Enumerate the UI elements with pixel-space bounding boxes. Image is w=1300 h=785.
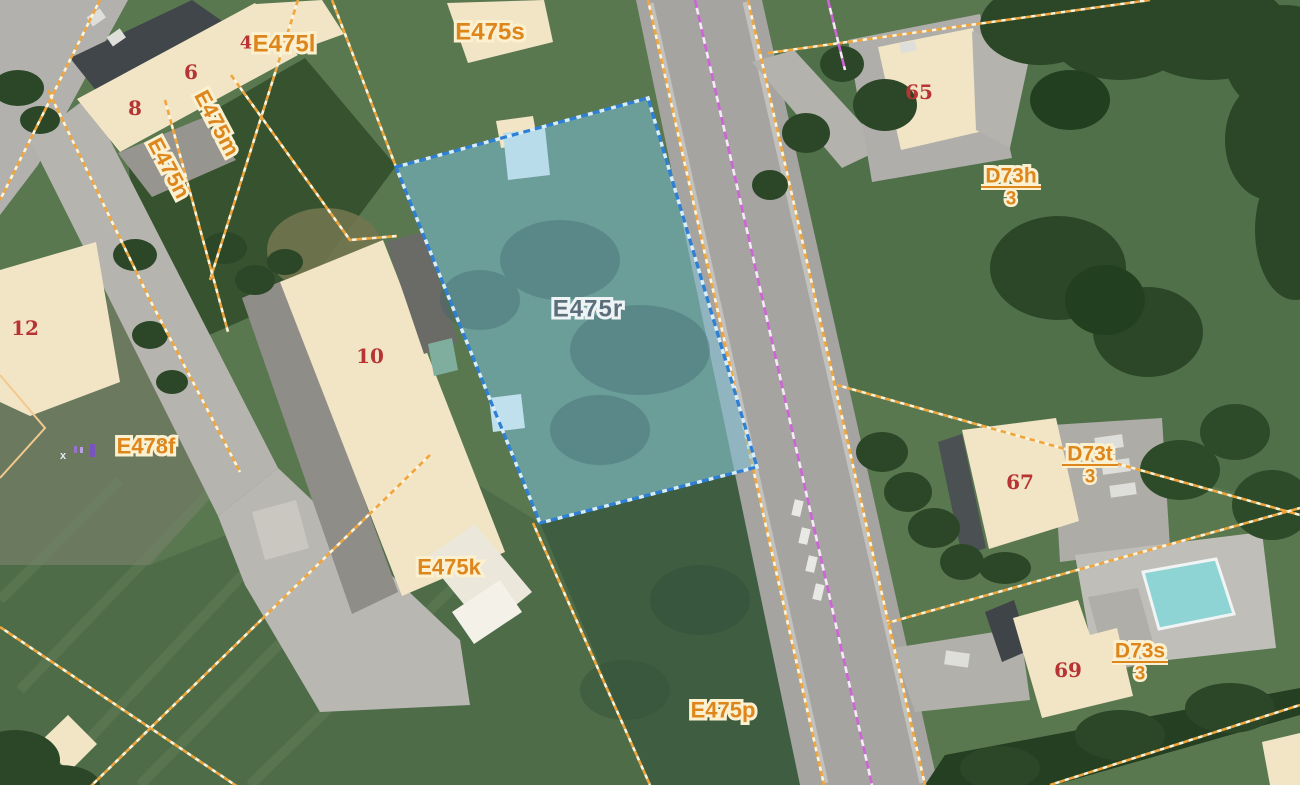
bush — [156, 370, 188, 394]
tree — [1030, 70, 1110, 130]
tree — [1185, 683, 1275, 733]
parcel-label-e475l[interactable]: E475l — [253, 31, 316, 58]
house-number-67: 67 — [1006, 470, 1034, 494]
survey-marker-tick — [80, 447, 83, 453]
bush — [267, 249, 303, 275]
tree — [1200, 404, 1270, 460]
bush — [820, 46, 864, 82]
house-number-65: 65 — [905, 80, 933, 104]
hedge — [856, 432, 908, 472]
house-number-8: 8 — [128, 96, 142, 120]
parcel-label-e475s[interactable]: E475s — [455, 19, 524, 46]
house-number-6: 6 — [184, 60, 198, 84]
survey-marker-post — [90, 444, 95, 457]
fraction-denominator: 3 — [1135, 664, 1146, 685]
parcel-label-e475k[interactable]: E475k — [417, 555, 481, 580]
parcel-label-e475p[interactable]: E475p — [691, 698, 756, 723]
fraction-denominator: 3 — [1006, 189, 1017, 210]
parcel-label-e478f[interactable]: E478f — [117, 434, 176, 459]
hedge — [908, 508, 960, 548]
hedge — [884, 472, 932, 512]
bush — [782, 113, 830, 153]
house-number-10: 10 — [356, 344, 384, 368]
tree — [1065, 265, 1145, 335]
field-shade — [650, 565, 750, 635]
hedge — [979, 552, 1031, 584]
bush — [752, 170, 788, 200]
cadastral-map-canvas[interactable]: E475s 4 E475l 6 8 E475m E475n 12 E478f 1… — [0, 0, 1300, 785]
selected-parcel-label-e475r[interactable]: E475r — [553, 296, 623, 323]
map-viewport[interactable]: E475s 4 E475l 6 8 E475m E475n 12 E478f 1… — [0, 0, 1300, 785]
bush — [235, 265, 275, 295]
hedge — [940, 544, 984, 580]
house-number-4: 4 — [240, 33, 253, 54]
house-number-69: 69 — [1054, 658, 1082, 682]
house-number-12: 12 — [11, 316, 39, 340]
survey-marker-tick — [74, 446, 77, 453]
bush — [203, 232, 247, 264]
survey-marker-symbol: x — [60, 450, 67, 462]
field-shade — [580, 660, 670, 720]
fraction-denominator: 3 — [1085, 467, 1096, 488]
